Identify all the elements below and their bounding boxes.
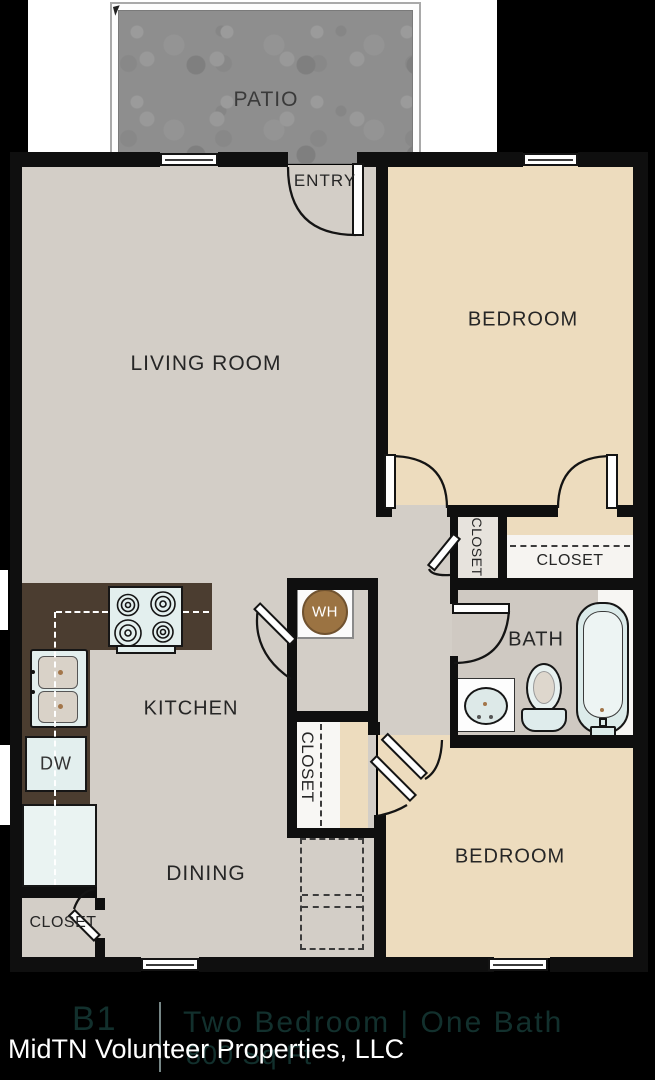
window-mullion [528,159,573,161]
vanity-sink [464,687,508,725]
floor-plan: PATIO ENTRY LIVING ROOM BEDROOM KITCHEN … [0,0,655,1080]
wall-center-closet-bottom [287,828,380,838]
water-heater-label: WH [312,604,338,621]
living-room-label: LIVING ROOM [130,352,281,376]
wall-left [10,152,22,972]
hall-closet-label: CLOSET [469,517,485,576]
vanity-dot-2 [489,715,493,719]
window-bottom-left [141,958,199,971]
wall-wh-closet-bottom [287,711,378,722]
dashed-counter-horizontal-1 [56,611,108,613]
dining-label: DINING [166,862,246,886]
hall-floor [376,505,452,735]
dashed-dining-divider-2 [302,906,362,908]
bedroom-closet-label: CLOSET [536,552,603,570]
bedroom-bottom-label: BEDROOM [455,846,565,869]
wall-entry-closet-right-upper [95,898,105,910]
dashed-center-closet [320,724,322,826]
wall-bottom-3 [550,957,648,972]
wall-top-2 [218,152,288,167]
wall-bedroom-bottom-right [617,505,633,517]
patio-surface [118,10,413,164]
window-top-right [523,153,578,166]
patio-label: PATIO [234,88,299,112]
window-top-left [160,153,218,166]
toilet-lid [533,671,555,704]
window-mullion [146,964,194,966]
sink-faucet-dot-1 [31,670,35,674]
wall-hall-closet-right [498,517,507,578]
wall-bath-top [450,578,633,590]
wall-bath-bottom [450,735,633,748]
window-mullion [165,159,213,161]
stove-front-lip [116,645,176,654]
wall-wh-closet-right [368,578,378,726]
vanity-dot-1 [477,715,481,719]
dishwasher-label: DW [40,754,72,775]
bedroom-top-label: BEDROOM [468,309,578,332]
bath-label: BATH [508,629,564,652]
dashed-closet-rod [510,545,630,547]
wall-bedroom-bottom-stub [376,505,392,517]
center-closet-tan-strip [340,722,368,828]
wall-bath-left-upper [450,578,458,604]
window-mullion [493,964,543,966]
wall-center-closet-right-stub [368,722,380,735]
refrigerator [22,804,97,887]
wall-right [633,152,648,972]
wall-living-bedroom [376,152,388,517]
wall-bath-left-lower [450,656,458,735]
entry-label: ENTRY [294,171,356,191]
stove [108,586,183,647]
dashed-counter-vertical [54,612,56,885]
sink-drain-bottom [58,704,63,709]
wall-entry-closet-top [22,887,97,898]
sink-drain-top [58,670,63,675]
bathtub-inner [583,611,623,718]
wall-hall-closet-left [450,517,458,578]
sink-faucet-dot-2 [31,690,35,694]
window-bottom-right [488,958,548,971]
dashed-dining-divider-1 [302,894,362,896]
wall-wh-closet-top [287,578,378,590]
wall-wh-closet-left [287,578,297,838]
vanity-sink-drain [483,702,487,706]
wall-bedroom-bottom-mid [447,505,558,517]
dashed-counter-horizontal-2 [183,611,209,613]
wall-top-1 [10,152,160,167]
entry-closet-label: CLOSET [29,914,96,932]
toilet-base [521,708,567,732]
kitchen-label: KITCHEN [144,698,239,721]
company-name: MidTN Volunteer Properties, LLC [8,1034,404,1065]
bathtub-drain [600,708,604,712]
center-closet-label: CLOSET [297,731,317,802]
bedroom-top-floor [388,165,633,505]
wall-bottom-1 [10,957,141,972]
wall-entry-closet-right-lower [95,938,105,957]
white-edge-artifact-1 [0,570,8,630]
wall-bottom-2 [199,957,494,972]
